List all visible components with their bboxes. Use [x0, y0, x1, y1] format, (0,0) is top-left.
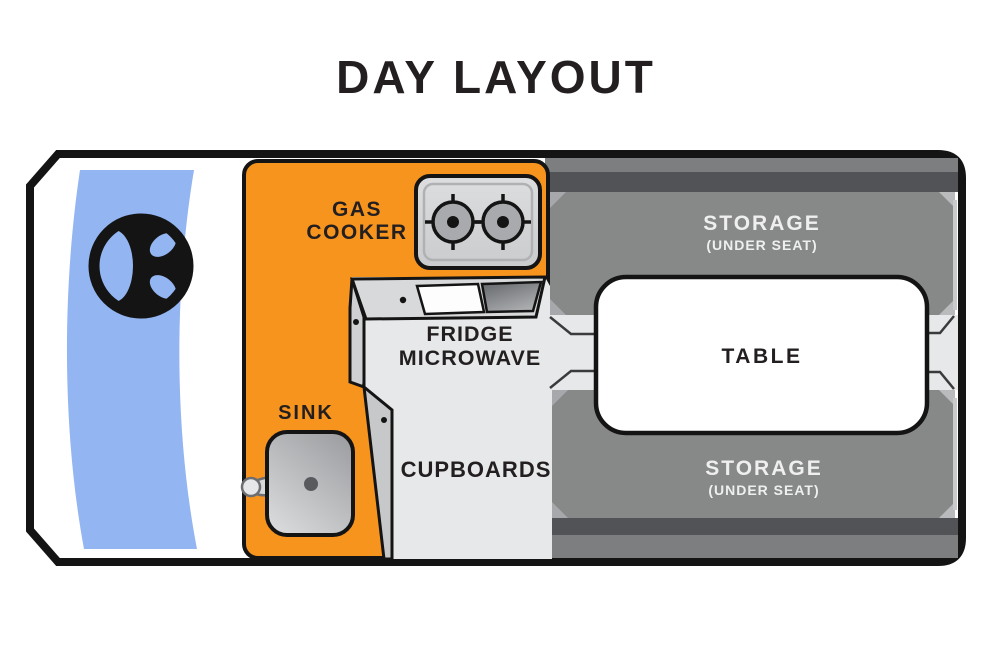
storage-bottom-sublabel: (UNDER SEAT): [708, 482, 819, 498]
storage-top-dark-band: [545, 172, 958, 192]
knob-dot: [381, 417, 387, 423]
storage-top-sublabel: (UNDER SEAT): [706, 237, 817, 253]
page-title: DAY LAYOUT: [336, 51, 656, 103]
table-label: TABLE: [722, 345, 803, 368]
knob-dot: [353, 319, 359, 325]
knob-dot: [400, 297, 406, 303]
fridge-microwave-label-line1: FRIDGE: [426, 322, 513, 346]
gas-cooker-label-line2: COOKER: [306, 221, 407, 244]
storage-bottom-label: STORAGE: [705, 457, 822, 480]
microwave-door-panel: [482, 282, 541, 312]
gas-cooker: [416, 176, 540, 268]
storage-top-ledge: [545, 158, 958, 174]
steering-wheel-icon: [94, 219, 188, 313]
sink-label: SINK: [278, 402, 334, 424]
cupboards-label: CUPBOARDS: [401, 457, 552, 482]
storage-bottom-dark-band: [552, 518, 958, 537]
storage-top-label: STORAGE: [703, 212, 820, 235]
day-layout-diagram: DAY LAYOUT: [0, 0, 1000, 667]
gas-cooker-label-line1: GAS: [332, 198, 382, 221]
storage-bottom-ledge: [552, 535, 958, 558]
fridge-door-panel: [417, 284, 484, 314]
fridge-microwave-label-line2: MICROWAVE: [399, 346, 541, 370]
sink-drain: [304, 477, 318, 491]
